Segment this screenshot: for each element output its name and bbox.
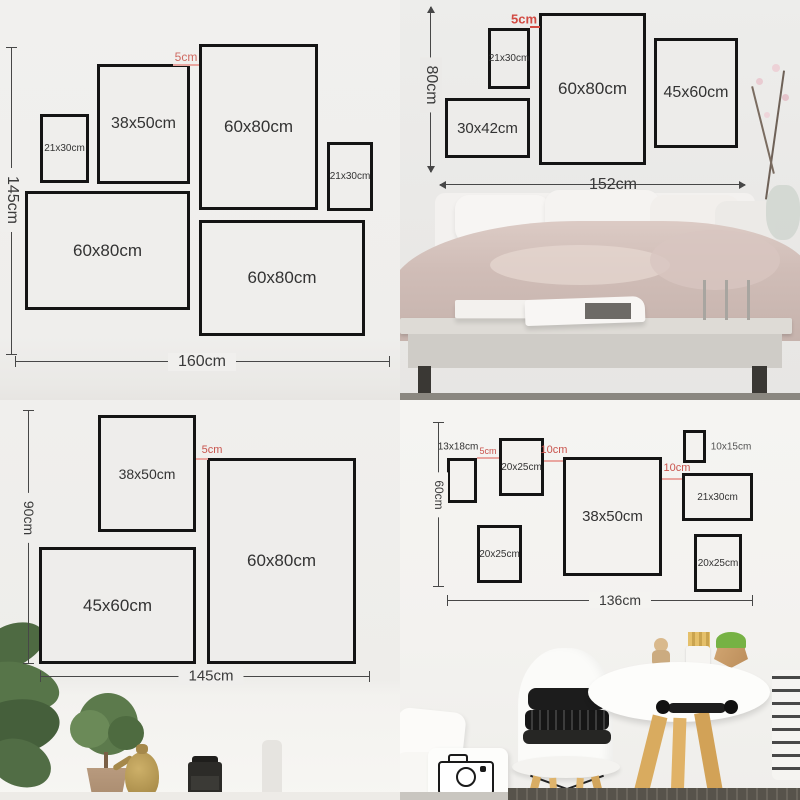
frame-30x42: 30x42cm xyxy=(445,98,530,158)
frame-21x30: 21x30cm xyxy=(40,114,89,183)
frame-size-label: 21x30cm xyxy=(697,492,738,503)
frame-21x30: 21x30cm xyxy=(327,142,373,211)
candlestick-set xyxy=(695,280,765,320)
frame-13x18 xyxy=(447,458,477,503)
dining-layout-60x136: 13x18cm 20x25cm 38x50cm 10x15cm 21x30cm … xyxy=(400,400,800,800)
gap-line xyxy=(544,460,563,462)
layout-diagram-145x160: 145cm 160cm 21x30cm 38x50cm 60x80cm 21x3… xyxy=(0,0,400,400)
frame-21x30: 21x30cm xyxy=(682,473,753,521)
gallery-wall-size-guide: 145cm 160cm 21x30cm 38x50cm 60x80cm 21x3… xyxy=(0,0,800,800)
height-dimension-label: 145cm xyxy=(1,168,23,232)
frame-size-label: 20x25cm xyxy=(501,462,542,473)
frame-size-label: 60x80cm xyxy=(224,117,293,137)
gap-line xyxy=(173,64,199,66)
frame-size-label: 45x60cm xyxy=(83,596,152,616)
frame-size-label: 60x80cm xyxy=(247,551,316,571)
gap-label: 5cm xyxy=(511,12,537,27)
frame-20x25: 20x25cm xyxy=(477,525,522,583)
frame-size-label: 60x80cm xyxy=(558,79,627,99)
frame-60x80: 60x80cm xyxy=(207,458,356,664)
table-leg xyxy=(694,711,725,800)
patterned-pillow-edge xyxy=(772,670,800,780)
frame-size-label: 20x25cm xyxy=(698,558,739,569)
frame-60x80: 60x80cm xyxy=(199,220,365,336)
frame-size-label: 60x80cm xyxy=(248,268,317,288)
frame-38x50: 38x50cm xyxy=(563,457,662,576)
bedroom-photo xyxy=(400,185,800,400)
table-top xyxy=(588,662,770,722)
sweater-stack xyxy=(523,730,611,744)
magazine-photo xyxy=(585,303,631,319)
glass-vase xyxy=(766,185,800,240)
frame-38x50: 38x50cm xyxy=(97,64,190,184)
height-dimension-label: 80cm xyxy=(420,57,442,112)
frame-21x30: 21x30cm xyxy=(488,28,530,89)
frame-size-label: 45x60cm xyxy=(664,84,729,102)
bedroom-layout-80x152: 21x30cm 60x80cm 45x60cm 30x42cm 80cm 152… xyxy=(400,0,800,400)
faint-bottle xyxy=(262,740,282,800)
frame-size-label: 30x42cm xyxy=(457,120,518,137)
frame-60x80: 60x80cm xyxy=(539,13,646,165)
frame-size-label: 21x30cm xyxy=(330,171,371,182)
blossom xyxy=(764,112,770,118)
floor-strip xyxy=(400,393,800,400)
black-jar-label xyxy=(191,776,219,790)
blossom xyxy=(756,78,763,85)
frame-38x50: 38x50cm xyxy=(98,415,196,532)
frame-20x25: 20x25cm xyxy=(499,438,544,496)
frame-45x60: 45x60cm xyxy=(39,547,196,664)
gap-label: 10cm xyxy=(664,462,691,474)
succulent xyxy=(716,632,746,650)
layout-diagram-90x145: 38x50cm 60x80cm 45x60cm 90cm 145cm 5cm xyxy=(0,400,400,800)
frame-size-label: 38x50cm xyxy=(582,508,643,525)
tabletop-edge xyxy=(0,792,400,800)
camera-sketch-detail xyxy=(480,766,486,772)
plant-shelf-photo xyxy=(0,688,400,800)
camera-sketch-lens xyxy=(456,767,476,787)
frame-20x25: 20x25cm xyxy=(694,534,742,592)
frame-45x60: 45x60cm xyxy=(654,38,738,148)
watering-can-knob xyxy=(136,744,148,754)
table-clamp xyxy=(668,703,726,713)
bench-front xyxy=(408,334,782,368)
chair-seat xyxy=(512,756,620,778)
vase-with-branches xyxy=(748,50,800,240)
gap-line xyxy=(477,457,499,459)
topiary-trunk xyxy=(104,752,108,770)
gap-label: 5cm xyxy=(202,444,223,456)
gap-line xyxy=(662,478,682,480)
gap-label: 5cm xyxy=(479,446,496,456)
duvet-highlight xyxy=(490,245,670,285)
blossom xyxy=(782,94,789,101)
frame-size-label: 21x30cm xyxy=(44,143,85,154)
table-clamp-bolt xyxy=(724,700,738,714)
table-clamp-bolt xyxy=(656,700,670,714)
width-dimension-label: 160cm xyxy=(168,353,236,371)
height-dimension-label: 90cm xyxy=(19,493,39,543)
gap-line xyxy=(196,458,208,460)
frame-size-label: 20x25cm xyxy=(479,549,520,560)
floor-left xyxy=(400,792,516,800)
gap-line xyxy=(530,26,540,28)
frame-60x80: 60x80cm xyxy=(199,44,318,210)
width-dimension-label: 136cm xyxy=(589,592,651,608)
branch-stem xyxy=(765,70,785,199)
gap-label: 10cm xyxy=(541,444,568,456)
frame-size-label: 60x80cm xyxy=(73,241,142,261)
blossom xyxy=(772,64,780,72)
dining-photo xyxy=(400,630,800,800)
sweater-stack xyxy=(525,710,609,730)
frame-size-label-10x15: 10x15cm xyxy=(701,442,762,453)
frame-size-label: 38x50cm xyxy=(119,466,176,482)
topiary-foliage xyxy=(70,710,110,748)
book-stack xyxy=(455,300,535,318)
width-dimension-label: 152cm xyxy=(579,176,647,194)
frame-size-label: 21x30cm xyxy=(489,53,530,64)
height-dimension-label: 60cm xyxy=(430,472,448,517)
frame-size-label: 38x50cm xyxy=(111,115,176,133)
frame-60x80: 60x80cm xyxy=(25,191,190,310)
gap-label: 5cm xyxy=(175,50,198,64)
width-dimension-label: 145cm xyxy=(178,668,243,685)
branch-stem xyxy=(751,86,775,174)
rug xyxy=(508,788,800,800)
